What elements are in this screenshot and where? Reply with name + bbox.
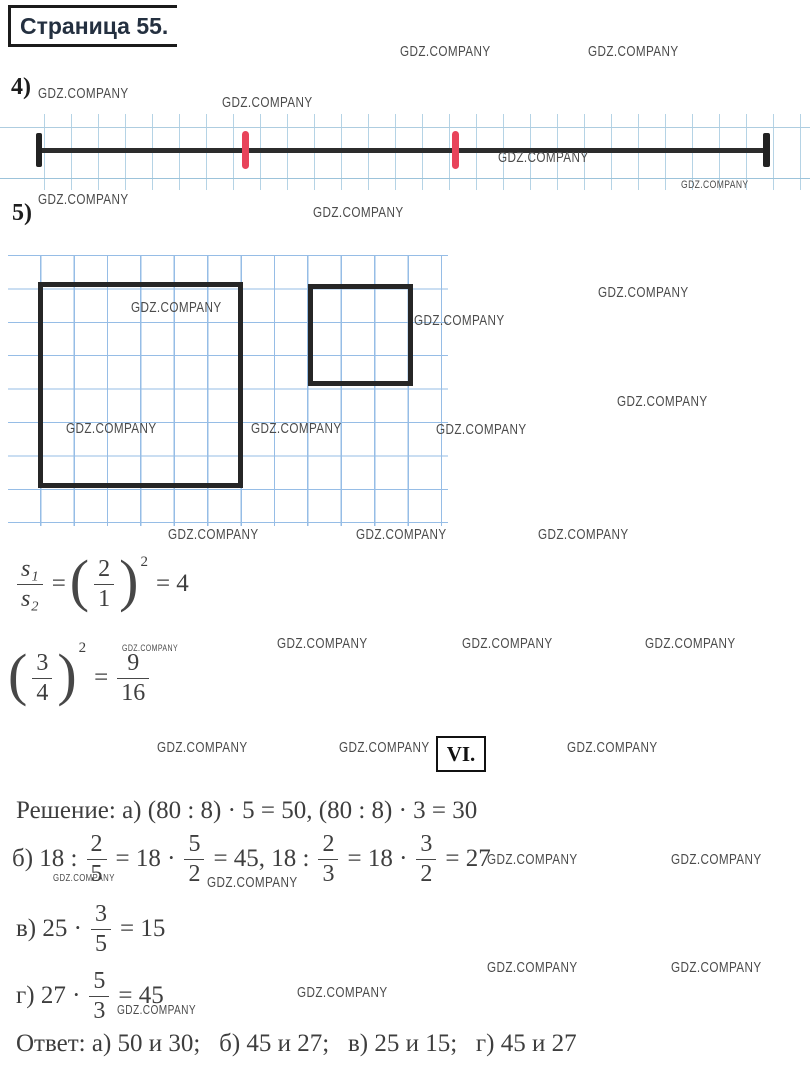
- math-token: (: [8, 649, 27, 701]
- math-token: 34: [32, 650, 52, 707]
- section-6-label: VI.: [447, 742, 476, 767]
- solution-line-a: Решение: а) (80 : 8) · 5 = 50, (80 : 8) …: [12, 794, 481, 828]
- watermark: GDZ.COMPANY: [462, 636, 553, 651]
- section-6-box: VI.: [436, 736, 486, 772]
- watermark: GDZ.COMPANY: [645, 636, 736, 651]
- watermark: GDZ.COMPANY: [339, 740, 430, 755]
- watermark: GDZ.COMPANY: [66, 421, 157, 436]
- math-token: б) 18 :: [12, 845, 78, 873]
- red-tick-1: [242, 131, 249, 169]
- math-token: 53: [89, 968, 109, 1025]
- math-token: Ответ: а) 50 и 30; б) 45 и 27; в) 25 и 1…: [16, 1030, 577, 1058]
- math-token: 2: [79, 640, 87, 657]
- right-end-tick: [763, 133, 770, 167]
- formula-area-ratio: s₁s₂=(21)2= 4: [12, 552, 193, 616]
- solution-line-g: г) 27 ·53= 45: [12, 963, 168, 1029]
- watermark: GDZ.COMPANY: [53, 874, 115, 884]
- watermark: GDZ.COMPANY: [277, 636, 368, 651]
- watermark: GDZ.COMPANY: [168, 527, 259, 542]
- page: Страница 55. 4) 5) s₁s₂=(21)2= 4 (34)2=9…: [0, 0, 810, 1074]
- watermark: GDZ.COMPANY: [567, 740, 658, 755]
- watermark: GDZ.COMPANY: [538, 527, 629, 542]
- watermark: GDZ.COMPANY: [487, 960, 578, 975]
- math-token: =: [52, 570, 66, 598]
- math-token: = 45, 18 :: [213, 845, 309, 873]
- math-token: = 4: [156, 570, 189, 598]
- watermark: GDZ.COMPANY: [131, 300, 222, 315]
- watermark: GDZ.COMPANY: [436, 422, 527, 437]
- math-token: г) 27 ·: [16, 982, 80, 1010]
- math-token: = 18 ·: [116, 845, 176, 873]
- watermark: GDZ.COMPANY: [498, 150, 589, 165]
- math-token: = 27: [445, 845, 490, 873]
- math-token: ): [119, 555, 138, 607]
- solution-line-v: в) 25 ·35= 15: [12, 896, 169, 962]
- math-token: в) 25 ·: [16, 915, 82, 943]
- page-title-box: Страница 55.: [8, 5, 177, 47]
- watermark: GDZ.COMPANY: [414, 313, 505, 328]
- watermark: GDZ.COMPANY: [222, 95, 313, 110]
- watermark: GDZ.COMPANY: [117, 1003, 196, 1016]
- watermark: GDZ.COMPANY: [487, 852, 578, 867]
- watermark: GDZ.COMPANY: [313, 205, 404, 220]
- math-token: 21: [94, 556, 114, 613]
- watermark: GDZ.COMPANY: [251, 421, 342, 436]
- red-tick-2: [452, 131, 459, 169]
- watermark: GDZ.COMPANY: [297, 985, 388, 1000]
- watermark: GDZ.COMPANY: [617, 394, 708, 409]
- math-token: 52: [184, 831, 204, 888]
- watermark: GDZ.COMPANY: [598, 285, 689, 300]
- math-token: 32: [416, 831, 436, 888]
- math-token: (: [70, 555, 89, 607]
- watermark: GDZ.COMPANY: [38, 86, 129, 101]
- math-token: 35: [91, 901, 111, 958]
- math-token: s₁s₂: [17, 556, 43, 613]
- page-title: Страница 55.: [11, 13, 168, 40]
- watermark: GDZ.COMPANY: [38, 192, 129, 207]
- math-token: Решение: а) (80 : 8) · 5 = 50, (80 : 8) …: [16, 797, 477, 825]
- left-end-tick: [36, 133, 42, 167]
- math-token: 916: [117, 650, 149, 707]
- math-token: ): [57, 649, 76, 701]
- math-token: = 15: [120, 915, 165, 943]
- watermark: GDZ.COMPANY: [356, 527, 447, 542]
- number-line: [38, 148, 768, 153]
- problem-4-label: 4): [11, 74, 31, 101]
- math-token: = 18 ·: [347, 845, 407, 873]
- watermark: GDZ.COMPANY: [207, 875, 298, 890]
- watermark: GDZ.COMPANY: [122, 644, 178, 653]
- math-token: 2: [140, 554, 148, 571]
- watermark: GDZ.COMPANY: [681, 180, 749, 191]
- small-square: [308, 284, 413, 386]
- math-token: =: [94, 664, 108, 692]
- watermark: GDZ.COMPANY: [588, 44, 679, 59]
- watermark: GDZ.COMPANY: [157, 740, 248, 755]
- problem-5-label: 5): [12, 200, 32, 227]
- watermark: GDZ.COMPANY: [671, 960, 762, 975]
- answer-line: Ответ: а) 50 и 30; б) 45 и 27; в) 25 и 1…: [12, 1026, 581, 1062]
- watermark: GDZ.COMPANY: [671, 852, 762, 867]
- math-token: 23: [318, 831, 338, 888]
- grid-hline: [0, 127, 810, 128]
- watermark: GDZ.COMPANY: [400, 44, 491, 59]
